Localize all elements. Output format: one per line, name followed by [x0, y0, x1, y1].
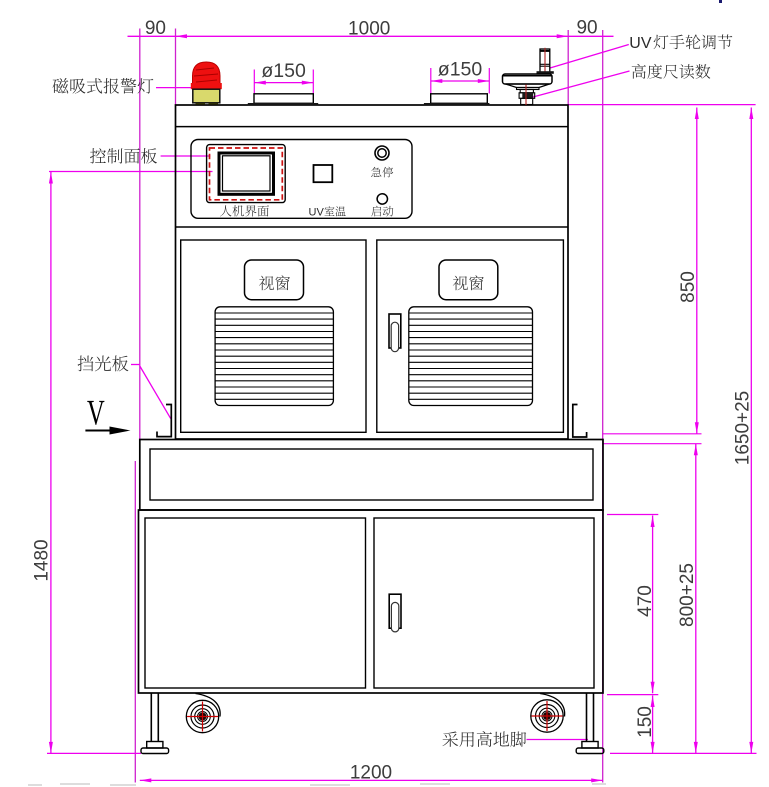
- svg-text:1200: 1200: [350, 763, 392, 784]
- svg-text:850: 850: [678, 271, 699, 303]
- svg-text:150: 150: [635, 706, 656, 738]
- svg-text:1650+25: 1650+25: [733, 391, 754, 466]
- svg-text:ø150: ø150: [438, 59, 483, 81]
- svg-text:800+25: 800+25: [677, 563, 698, 627]
- svg-text:UV: UV: [309, 207, 325, 219]
- svg-text:1000: 1000: [348, 19, 390, 40]
- svg-text:1480: 1480: [32, 539, 53, 581]
- svg-text:90: 90: [576, 18, 597, 39]
- svg-text:ø150: ø150: [261, 60, 306, 82]
- svg-text:90: 90: [145, 18, 166, 39]
- svg-text:UV: UV: [629, 35, 652, 52]
- svg-text:470: 470: [635, 585, 656, 617]
